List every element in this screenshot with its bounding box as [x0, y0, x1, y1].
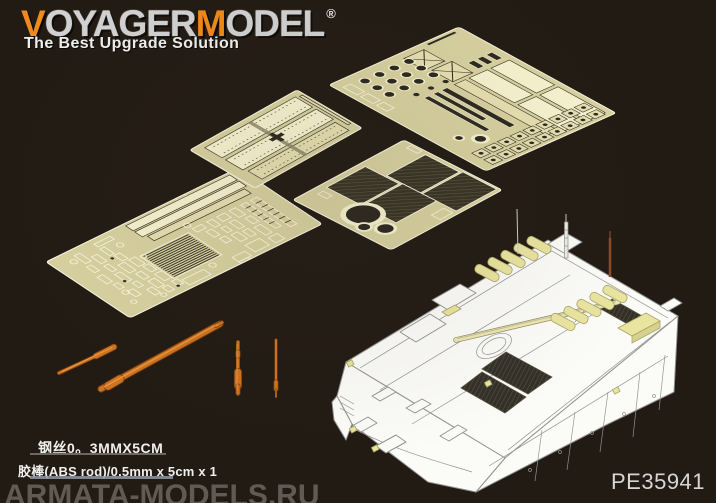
product-code: PE35941 — [611, 469, 705, 495]
antenna-mast — [565, 214, 569, 258]
logo-letters-odel: ODEL — [225, 3, 324, 44]
pe-fret-hatch-panels — [190, 90, 362, 188]
pe-fret-main — [46, 168, 322, 318]
steel-wire-spec-label: 钢丝0。3MMX5CM — [38, 438, 163, 458]
brass-antenna-mount — [237, 342, 238, 394]
pe-fret-large — [329, 27, 616, 171]
brass-rod-short — [59, 347, 114, 373]
brass-rod-long — [101, 323, 222, 390]
product-scene — [0, 0, 716, 503]
brand-tagline: The Best Upgrade Solution — [24, 35, 239, 53]
steel-wire-underline — [30, 453, 166, 455]
brass-rods — [59, 323, 276, 398]
registered-trademark-mark: ® — [326, 6, 336, 21]
vehicle-illustration — [332, 209, 682, 492]
watermark-text: ARMATA-MODELS.RU — [4, 479, 320, 503]
product-photo: VOYAGERMODEL® The Best Upgrade Solution … — [0, 0, 716, 503]
